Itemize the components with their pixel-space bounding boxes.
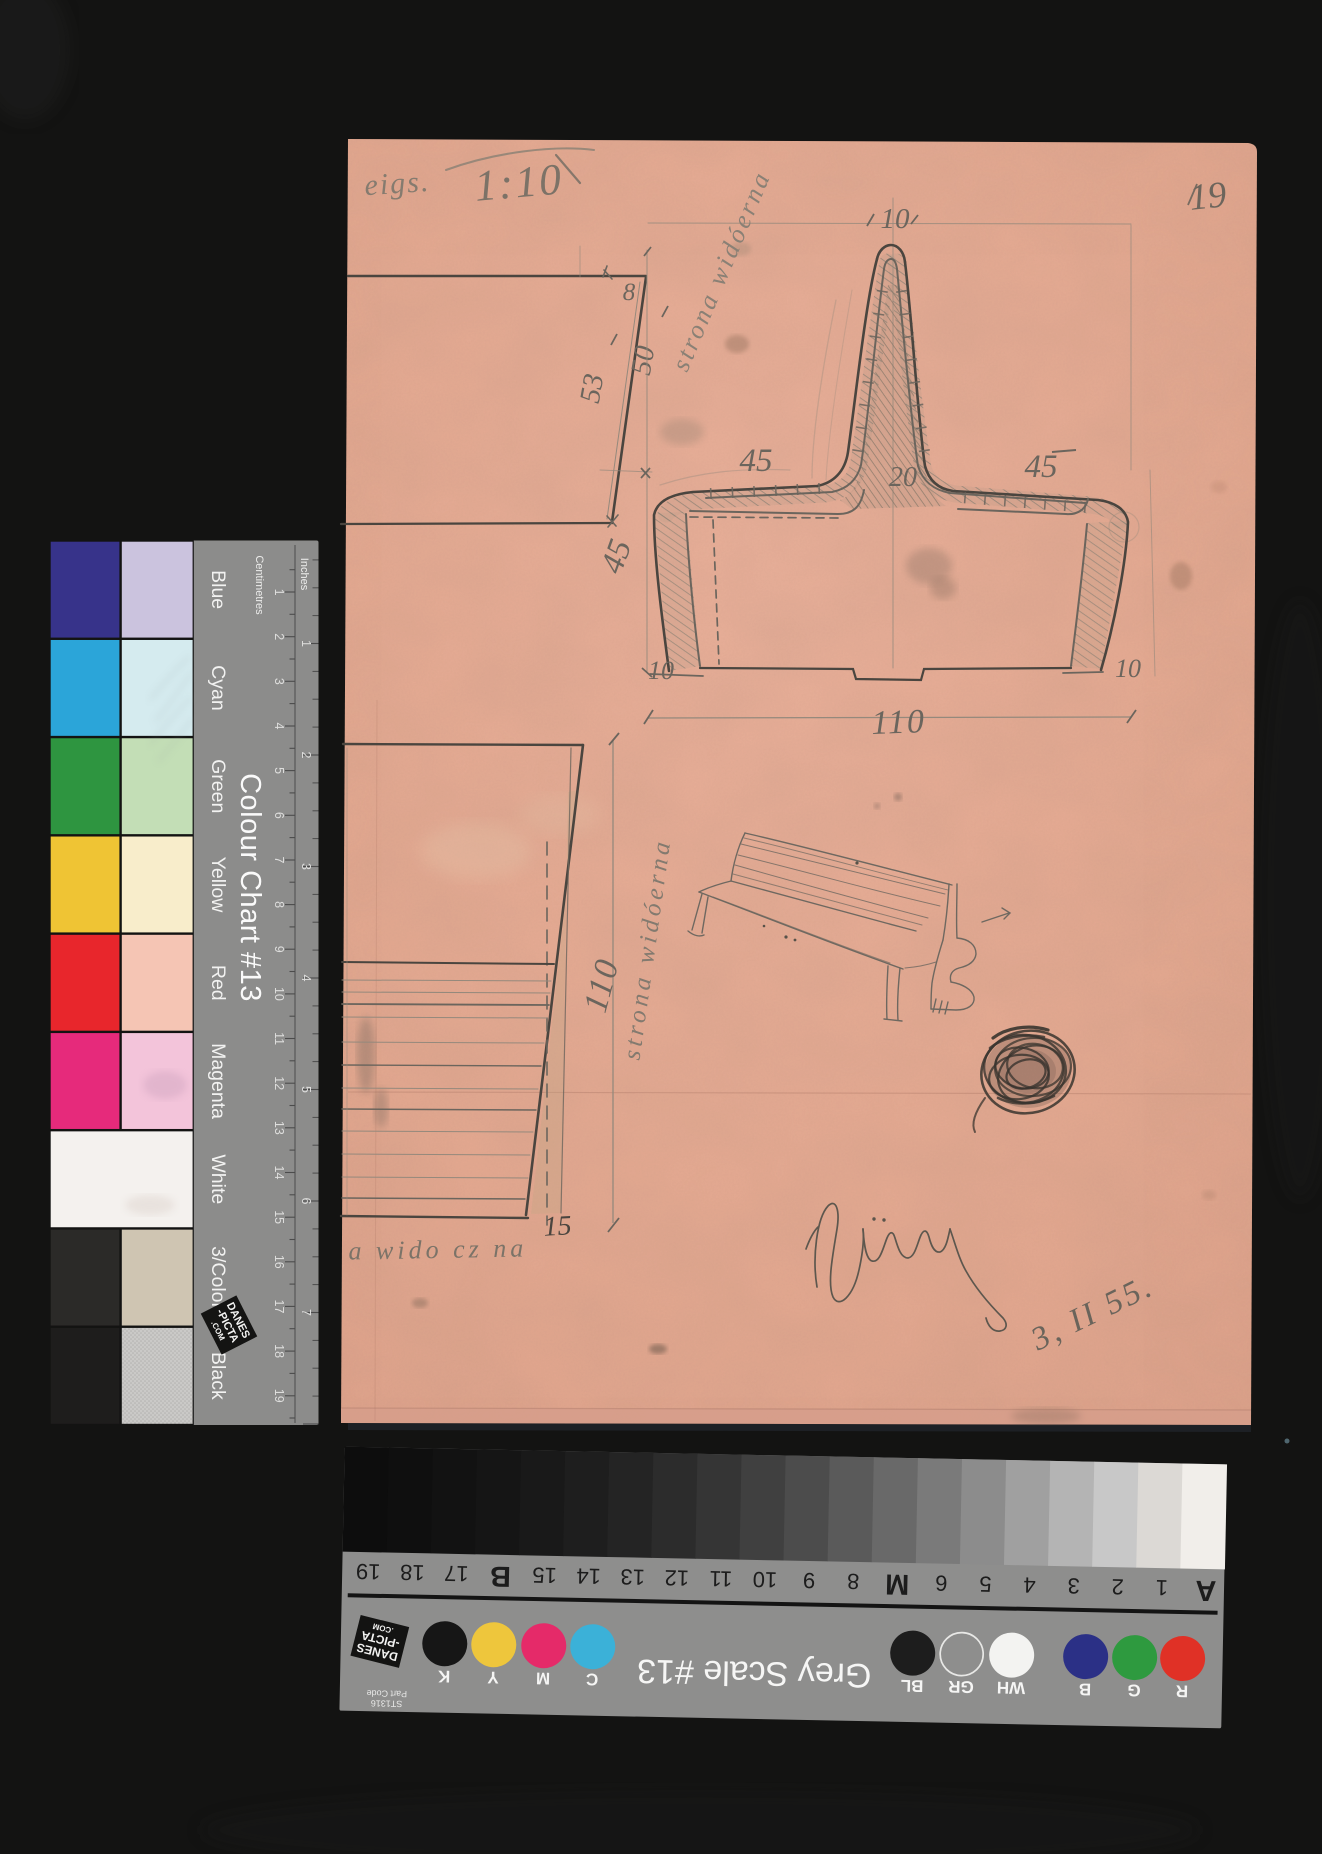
svg-text:18: 18 <box>272 1344 286 1358</box>
svg-text:3: 3 <box>272 678 286 685</box>
svg-text:15: 15 <box>543 1210 573 1242</box>
svg-text:Magenta: Magenta <box>207 1043 229 1119</box>
svg-text:17: 17 <box>444 1561 469 1586</box>
svg-text:3/Color: 3/Color <box>207 1246 229 1309</box>
svg-text:a wido cz na: a wido cz na <box>348 1233 527 1265</box>
svg-text:18: 18 <box>400 1560 425 1585</box>
svg-text:Green: Green <box>207 759 229 813</box>
svg-text:53: 53 <box>574 371 611 405</box>
svg-text:2: 2 <box>299 752 313 759</box>
svg-text:BL: BL <box>901 1676 924 1695</box>
svg-text:3: 3 <box>1067 1573 1080 1598</box>
svg-text:Black: Black <box>207 1352 229 1400</box>
svg-text:3: 3 <box>299 863 313 870</box>
svg-text:10: 10 <box>881 203 911 235</box>
svg-text:16: 16 <box>272 1255 286 1269</box>
svg-text:15: 15 <box>532 1562 557 1587</box>
svg-text:K: K <box>437 1667 450 1686</box>
svg-text:10: 10 <box>1115 654 1141 683</box>
svg-text:Grey Scale #13: Grey Scale #13 <box>637 1652 872 1695</box>
svg-text:8: 8 <box>623 279 636 306</box>
svg-text:45: 45 <box>1025 449 1058 485</box>
svg-text:M: M <box>536 1669 551 1688</box>
svg-text:13: 13 <box>620 1564 645 1589</box>
svg-text:14: 14 <box>576 1563 601 1588</box>
svg-text:5: 5 <box>299 1086 313 1093</box>
svg-text:19: 19 <box>1187 174 1228 219</box>
svg-text:4: 4 <box>1023 1572 1036 1597</box>
svg-text:10: 10 <box>753 1567 778 1592</box>
svg-text:7: 7 <box>299 1309 313 1316</box>
svg-text:M: M <box>885 1568 910 1600</box>
svg-text:20: 20 <box>889 462 917 493</box>
svg-text:8: 8 <box>847 1569 860 1594</box>
svg-text:6: 6 <box>299 1198 313 1205</box>
svg-text:2: 2 <box>1111 1574 1124 1599</box>
svg-text:14: 14 <box>272 1166 286 1180</box>
svg-text:19: 19 <box>356 1559 381 1584</box>
svg-text:4: 4 <box>272 723 286 730</box>
svg-text:11: 11 <box>709 1566 732 1591</box>
svg-text:WH: WH <box>997 1678 1026 1698</box>
svg-text:13: 13 <box>272 1121 286 1135</box>
svg-text:17: 17 <box>272 1299 286 1313</box>
svg-text:Red: Red <box>207 965 229 1001</box>
svg-text:B: B <box>1079 1679 1092 1698</box>
svg-text:eigs.: eigs. <box>363 165 431 203</box>
svg-text:12: 12 <box>664 1565 689 1590</box>
svg-text:1: 1 <box>272 589 286 596</box>
svg-text:2: 2 <box>272 633 286 640</box>
svg-text:Inches: Inches <box>298 558 310 591</box>
svg-text:10: 10 <box>648 656 674 685</box>
svg-text:11: 11 <box>272 1032 286 1045</box>
svg-text:Part Code: Part Code <box>366 1688 407 1699</box>
svg-text:Y: Y <box>487 1668 499 1687</box>
svg-text:1:10: 1:10 <box>472 154 565 211</box>
svg-text:8: 8 <box>272 901 286 908</box>
svg-text:15: 15 <box>272 1210 286 1224</box>
svg-text:5: 5 <box>979 1571 992 1596</box>
svg-text:GR: GR <box>948 1677 974 1697</box>
svg-text:110: 110 <box>871 703 927 742</box>
svg-text:Yellow: Yellow <box>207 857 229 914</box>
svg-text:9: 9 <box>803 1568 816 1593</box>
svg-text:R: R <box>1176 1681 1189 1700</box>
svg-text:10: 10 <box>272 987 286 1001</box>
svg-text:Centimetres: Centimetres <box>253 555 265 615</box>
svg-text:5: 5 <box>272 767 286 774</box>
svg-text:4: 4 <box>299 975 313 982</box>
svg-text:1: 1 <box>1155 1575 1168 1600</box>
svg-text:12: 12 <box>272 1076 286 1090</box>
svg-text:A: A <box>1195 1574 1217 1606</box>
svg-text:B: B <box>490 1560 512 1592</box>
svg-text:Colour Chart #13: Colour Chart #13 <box>234 773 266 1002</box>
svg-text:Blue: Blue <box>207 570 229 609</box>
svg-text:White: White <box>207 1154 229 1204</box>
svg-text:6: 6 <box>935 1571 948 1596</box>
svg-text:45: 45 <box>740 443 773 479</box>
svg-text:Cyan: Cyan <box>207 665 229 711</box>
svg-text:19: 19 <box>272 1389 286 1403</box>
svg-text:7: 7 <box>272 856 286 863</box>
svg-text:50: 50 <box>625 343 662 378</box>
svg-text:G: G <box>1127 1680 1141 1699</box>
svg-text:C: C <box>586 1670 599 1689</box>
svg-text:ST1316: ST1316 <box>371 1698 403 1709</box>
svg-text:6: 6 <box>272 812 286 819</box>
svg-text:9: 9 <box>272 946 286 953</box>
svg-text:1: 1 <box>299 640 313 647</box>
